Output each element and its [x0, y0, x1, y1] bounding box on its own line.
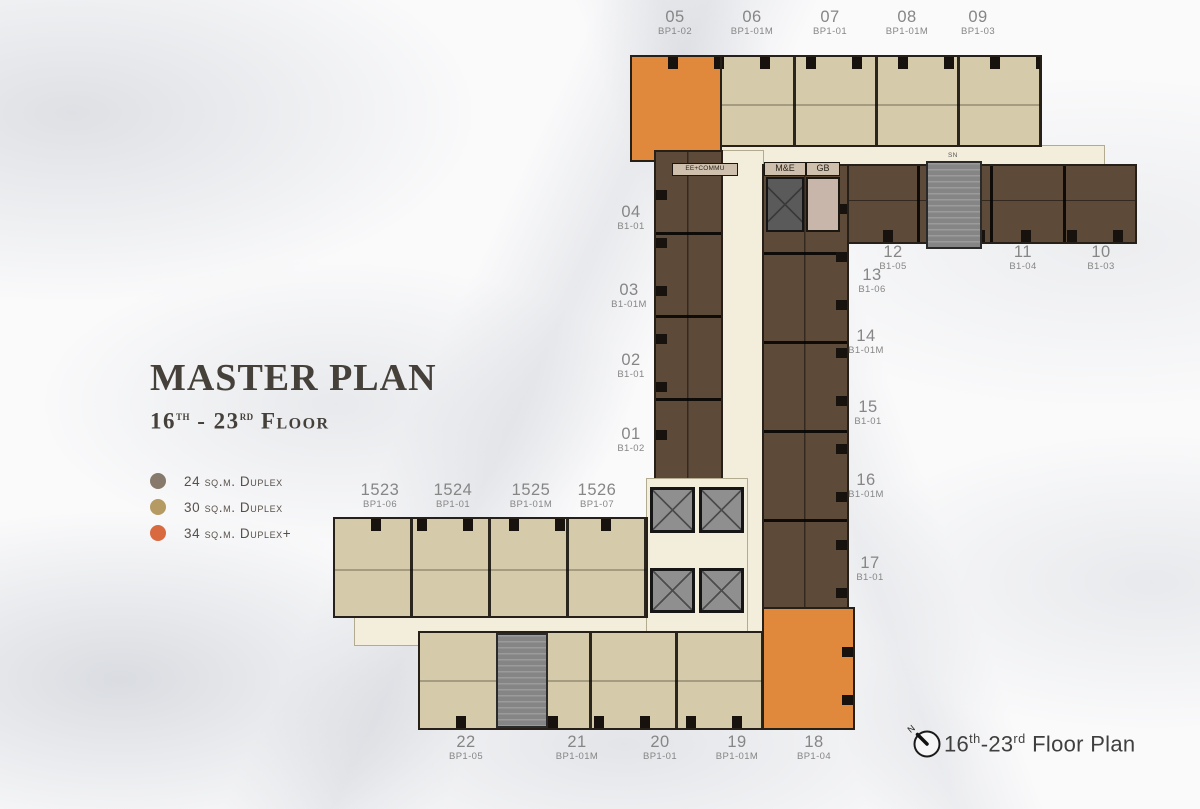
unit-number: 16: [848, 471, 884, 489]
elevator-shaft-3: [650, 568, 695, 613]
unit-label-1523: 1523BP1-06: [361, 481, 400, 510]
stairwell-bottom: [496, 633, 548, 728]
unit-type: BP1-01M: [556, 751, 598, 762]
unit-label-03: 03B1-01M: [611, 281, 647, 310]
unit-number: 1525: [510, 481, 552, 499]
unit-label-1524: 1524BP1-01: [434, 481, 473, 510]
unit-number: 06: [731, 8, 773, 26]
unit-number: 14: [848, 327, 884, 345]
unit-type: B1-01M: [848, 345, 884, 356]
unit-number: 13: [858, 266, 885, 284]
text-part: th: [969, 731, 981, 746]
text-part: Floor Plan: [1026, 731, 1136, 756]
unit-type: B1-01: [856, 572, 883, 583]
elevator-shaft-1: [650, 487, 695, 533]
unit-type: B1-01: [617, 369, 644, 380]
unit-number: 09: [961, 8, 995, 26]
unit-label-22: 22BP1-05: [449, 733, 483, 762]
wing-bottom-units: [418, 631, 764, 730]
me-shaft: [766, 177, 804, 232]
unit-label-13: 13B1-06: [858, 266, 885, 295]
unit-type: B1-04: [1009, 261, 1036, 272]
unit-label-07: 07BP1-01: [813, 8, 847, 37]
unit-number: 22: [449, 733, 483, 751]
unit-label-06: 06BP1-01M: [731, 8, 773, 37]
unit-type: BP1-01: [813, 26, 847, 37]
unit-type: BP1-05: [449, 751, 483, 762]
unit-number: 21: [556, 733, 598, 751]
room-gb-label: GB: [806, 162, 840, 176]
unit-type: B1-03: [1087, 261, 1114, 272]
unit-number: 12: [879, 243, 906, 261]
unit-type: BP1-01: [643, 751, 677, 762]
floor-plan-caption: 16th-23rd Floor Plan: [944, 731, 1135, 757]
text-part: 16: [944, 731, 969, 756]
unit-label-19: 19BP1-01M: [716, 733, 758, 762]
unit-label-16: 16B1-01M: [848, 471, 884, 500]
unit-type: BP1-01M: [510, 499, 552, 510]
unit-label-05: 05BP1-02: [658, 8, 692, 37]
unit-type: BP1-07: [578, 499, 617, 510]
unit-number: 10: [1087, 243, 1114, 261]
unit-number: 11: [1009, 243, 1036, 261]
unit-label-11: 11B1-04: [1009, 243, 1036, 272]
unit-label-1525: 1525BP1-01M: [510, 481, 552, 510]
compass-north-label: N: [906, 723, 917, 735]
unit-label-1526: 1526BP1-07: [578, 481, 617, 510]
unit-number: 15: [854, 398, 881, 416]
compass: N: [906, 722, 946, 762]
unit-number: 1526: [578, 481, 617, 499]
room-gb: [806, 177, 840, 232]
unit-number: 1524: [434, 481, 473, 499]
unit-label-01: 01B1-02: [617, 425, 644, 454]
unit-type: B1-02: [617, 443, 644, 454]
unit-label-17: 17B1-01: [856, 554, 883, 583]
unit-number: 1523: [361, 481, 400, 499]
room-me: M&E: [764, 162, 806, 176]
stair-sn-label: SN: [948, 152, 958, 159]
unit-label-15: 15B1-01: [854, 398, 881, 427]
master-plan-page: MASTER PLAN 16th - 23rd Floor 24 sq.m. D…: [0, 0, 1200, 809]
unit-label-14: 14B1-01M: [848, 327, 884, 356]
unit-18-orange: [762, 607, 855, 730]
unit-label-18: 18BP1-04: [797, 733, 831, 762]
floor-plan: SN EE+COMMU M&E GB 05BP1-0206BP1-01M07BP…: [0, 0, 1200, 809]
unit-type: BP1-01M: [716, 751, 758, 762]
stairwell-top-right: [926, 161, 982, 249]
unit-number: 05: [658, 8, 692, 26]
unit-type: B1-01: [854, 416, 881, 427]
unit-type: BP1-06: [361, 499, 400, 510]
elevator-shaft-4: [699, 568, 744, 613]
unit-number: 18: [797, 733, 831, 751]
wing-middle-units: [333, 517, 648, 618]
unit-type: B1-01M: [611, 299, 647, 310]
unit-type: B1-01: [617, 221, 644, 232]
unit-label-04: 04B1-01: [617, 203, 644, 232]
wing-top-right-units: [845, 164, 1137, 244]
unit-type: B1-06: [858, 284, 885, 295]
unit-label-10: 10B1-03: [1087, 243, 1114, 272]
unit-number: 17: [856, 554, 883, 572]
unit-label-21: 21BP1-01M: [556, 733, 598, 762]
unit-number: 01: [617, 425, 644, 443]
unit-05-orange: [630, 55, 722, 162]
unit-number: 08: [886, 8, 928, 26]
unit-type: BP1-03: [961, 26, 995, 37]
unit-number: 20: [643, 733, 677, 751]
column-left-units: [654, 150, 723, 482]
unit-label-20: 20BP1-01: [643, 733, 677, 762]
unit-type: BP1-04: [797, 751, 831, 762]
unit-number: 02: [617, 351, 644, 369]
elevator-shaft-2: [699, 487, 744, 533]
unit-type: BP1-01: [434, 499, 473, 510]
unit-label-09: 09BP1-03: [961, 8, 995, 37]
text-part: rd: [1013, 731, 1025, 746]
unit-label-02: 02B1-01: [617, 351, 644, 380]
compass-icon: N: [906, 722, 946, 762]
unit-type: BP1-01M: [886, 26, 928, 37]
unit-number: 03: [611, 281, 647, 299]
unit-number: 04: [617, 203, 644, 221]
unit-number: 07: [813, 8, 847, 26]
unit-type: B1-01M: [848, 489, 884, 500]
unit-label-08: 08BP1-01M: [886, 8, 928, 37]
unit-type: BP1-02: [658, 26, 692, 37]
text-part: -23: [981, 731, 1014, 756]
room-ee-commu: EE+COMMU: [672, 163, 738, 176]
unit-number: 19: [716, 733, 758, 751]
unit-type: BP1-01M: [731, 26, 773, 37]
